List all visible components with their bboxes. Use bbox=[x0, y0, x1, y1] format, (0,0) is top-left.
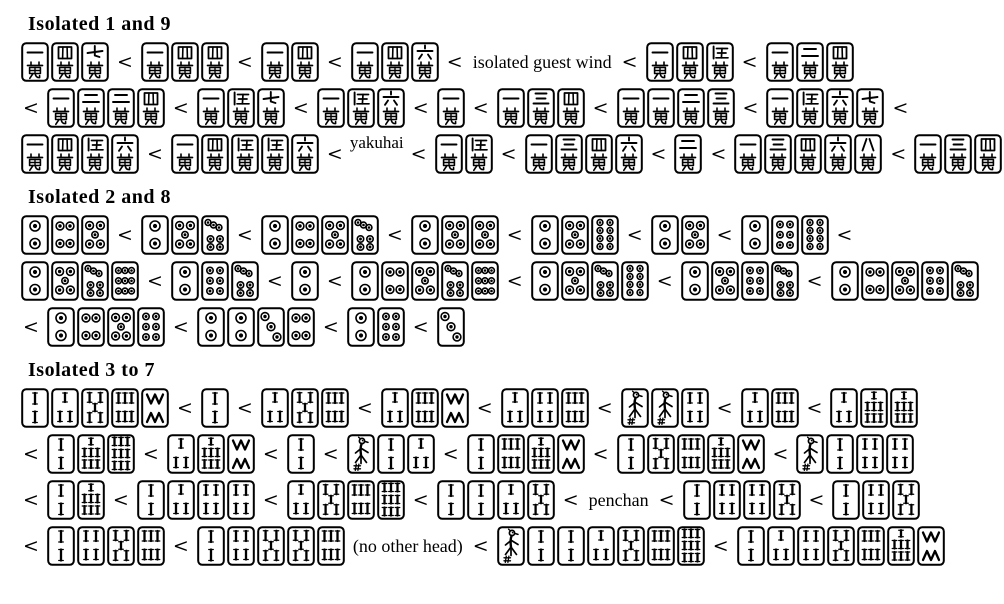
less-than-separator: < bbox=[23, 99, 39, 118]
less-than-separator: < bbox=[23, 491, 39, 510]
less-than-separator: < bbox=[113, 491, 129, 510]
mahjong-tile-4m bbox=[291, 42, 319, 82]
mahjong-tile-6p bbox=[201, 261, 229, 301]
mahjong-tile-6p bbox=[921, 261, 949, 301]
less-than-separator: < bbox=[263, 491, 279, 510]
less-than-separator: < bbox=[773, 445, 789, 464]
mahjong-tile-1s bbox=[651, 388, 679, 428]
tile-group bbox=[140, 215, 230, 255]
less-than-separator: < bbox=[267, 272, 283, 291]
tile-group bbox=[260, 215, 380, 255]
less-than-separator: < bbox=[627, 226, 643, 245]
mahjong-tile-2s bbox=[437, 480, 465, 520]
mahjong-tile-5m bbox=[81, 134, 109, 174]
less-than-separator: < bbox=[717, 399, 733, 418]
mahjong-tile-2s bbox=[617, 434, 645, 474]
mahjong-tile-4s bbox=[743, 480, 771, 520]
tile-group bbox=[616, 434, 766, 474]
mahjong-tile-1m bbox=[171, 134, 199, 174]
mahjong-tile-5p bbox=[441, 215, 469, 255]
mahjong-tile-3s bbox=[381, 388, 409, 428]
tile-group bbox=[795, 434, 915, 474]
mahjong-tile-9p bbox=[471, 261, 499, 301]
less-than-separator: < bbox=[357, 399, 373, 418]
mahjong-tile-8s bbox=[227, 434, 255, 474]
tile-group bbox=[620, 388, 710, 428]
mahjong-tile-2s bbox=[557, 526, 585, 566]
mahjong-tile-4p bbox=[861, 261, 889, 301]
tile-group bbox=[46, 88, 166, 128]
mahjong-tile-6p bbox=[137, 307, 165, 347]
mahjong-tile-4s bbox=[681, 388, 709, 428]
mahjong-tile-9p bbox=[111, 261, 139, 301]
mahjong-tile-1m bbox=[766, 88, 794, 128]
mahjong-tile-9s bbox=[107, 434, 135, 474]
mahjong-tile-5s bbox=[617, 526, 645, 566]
mahjong-tile-6m bbox=[615, 134, 643, 174]
tile-group bbox=[496, 88, 586, 128]
tile-group bbox=[680, 261, 800, 301]
less-than-separator: < bbox=[173, 537, 189, 556]
mahjong-tile-2s bbox=[737, 526, 765, 566]
tile-group bbox=[200, 388, 230, 428]
less-than-separator: < bbox=[563, 491, 579, 510]
mahjong-tile-4s bbox=[197, 480, 225, 520]
less-than-separator: < bbox=[593, 445, 609, 464]
mahjong-tile-6s bbox=[317, 526, 345, 566]
mahjong-tile-6m bbox=[824, 134, 852, 174]
tile-row: <<<<<<< bbox=[14, 212, 1004, 258]
less-than-separator: < bbox=[387, 226, 403, 245]
mahjong-tile-3s bbox=[501, 388, 529, 428]
mahjong-tile-1m bbox=[734, 134, 762, 174]
mahjong-tile-4s bbox=[531, 388, 559, 428]
tile-group bbox=[136, 480, 256, 520]
mahjong-tile-1m bbox=[766, 42, 794, 82]
tile-group bbox=[260, 42, 320, 82]
mahjong-tile-5s bbox=[257, 526, 285, 566]
tile-group bbox=[20, 134, 140, 174]
tile-group bbox=[436, 307, 466, 347]
mahjong-tile-1m bbox=[21, 134, 49, 174]
mahjong-tile-6s bbox=[857, 526, 885, 566]
mahjong-tile-3m bbox=[555, 134, 583, 174]
tile-group bbox=[831, 480, 921, 520]
mahjong-tile-7p bbox=[81, 261, 109, 301]
less-than-separator: < bbox=[117, 226, 133, 245]
mahjong-tile-3s bbox=[167, 434, 195, 474]
mahjong-tile-5s bbox=[317, 480, 345, 520]
mahjong-tile-1s bbox=[497, 526, 525, 566]
tile-group bbox=[410, 215, 500, 255]
mahjong-tile-5s bbox=[107, 526, 135, 566]
mahjong-tile-7m bbox=[856, 88, 884, 128]
mahjong-tile-6s bbox=[347, 480, 375, 520]
tile-group bbox=[434, 134, 494, 174]
less-than-separator: < bbox=[890, 145, 906, 164]
less-than-separator: < bbox=[892, 99, 908, 118]
less-than-separator: < bbox=[23, 445, 39, 464]
less-than-separator: < bbox=[507, 272, 523, 291]
mahjong-tile-6s bbox=[497, 434, 525, 474]
tile-row: <<<< bbox=[14, 304, 1004, 350]
tile-row: <<(no other head)<< bbox=[14, 523, 1004, 569]
less-than-separator: < bbox=[413, 491, 429, 510]
mahjong-tile-4s bbox=[713, 480, 741, 520]
tile-group bbox=[616, 88, 736, 128]
mahjong-tile-5m bbox=[227, 88, 255, 128]
less-than-separator: < bbox=[327, 145, 343, 164]
mahjong-tile-4m bbox=[794, 134, 822, 174]
mahjong-tile-4m bbox=[201, 134, 229, 174]
mahjong-tile-2p bbox=[227, 307, 255, 347]
mahjong-tile-6s bbox=[677, 434, 705, 474]
mahjong-tile-6p bbox=[377, 307, 405, 347]
mahjong-tile-4m bbox=[676, 42, 704, 82]
mahjong-tile-4m bbox=[51, 134, 79, 174]
tile-group bbox=[740, 215, 830, 255]
mahjong-tile-2p bbox=[291, 261, 319, 301]
mahjong-tile-7p bbox=[441, 261, 469, 301]
mahjong-tile-8p bbox=[801, 215, 829, 255]
tile-row: <<yakuhai<<<<< bbox=[14, 131, 1004, 177]
less-than-separator: < bbox=[411, 145, 427, 164]
mahjong-tile-4m bbox=[51, 42, 79, 82]
tile-group bbox=[436, 88, 466, 128]
mahjong-tile-2p bbox=[171, 261, 199, 301]
tile-group bbox=[496, 526, 706, 566]
mahjong-tile-1s bbox=[796, 434, 824, 474]
mahjong-tile-4p bbox=[291, 215, 319, 255]
mahjong-tile-6s bbox=[137, 526, 165, 566]
less-than-separator: < bbox=[173, 99, 189, 118]
less-than-separator: < bbox=[237, 53, 253, 72]
tile-group bbox=[346, 434, 436, 474]
mahjong-tile-2s bbox=[287, 434, 315, 474]
annotation-isolated-guest-wind: isolated guest wind bbox=[473, 52, 612, 73]
mahjong-tile-2s bbox=[832, 480, 860, 520]
less-than-separator: < bbox=[807, 272, 823, 291]
mahjong-tile-8s bbox=[737, 434, 765, 474]
tile-group bbox=[46, 480, 106, 520]
mahjong-tile-2s bbox=[527, 526, 555, 566]
less-than-separator: < bbox=[143, 445, 159, 464]
tile-group bbox=[140, 42, 230, 82]
mahjong-tile-1m bbox=[261, 42, 289, 82]
mahjong-tile-4m bbox=[381, 42, 409, 82]
tile-group bbox=[260, 388, 350, 428]
tile-group bbox=[170, 134, 320, 174]
less-than-separator: < bbox=[447, 53, 463, 72]
tile-row: <<<<<penchan<< bbox=[14, 477, 1004, 523]
mahjong-isolated-tile-ranking-figure: Isolated 1 and 9<<<<isolated guest wind<… bbox=[0, 0, 1004, 604]
tile-row: <<<<<<< bbox=[14, 431, 1004, 477]
mahjong-tile-1m bbox=[141, 42, 169, 82]
mahjong-tile-2p bbox=[651, 215, 679, 255]
mahjong-tile-5p bbox=[681, 215, 709, 255]
mahjong-tile-2p bbox=[531, 261, 559, 301]
less-than-separator: < bbox=[23, 537, 39, 556]
mahjong-tile-9s bbox=[677, 526, 705, 566]
tile-group bbox=[46, 434, 136, 474]
mahjong-tile-4s bbox=[862, 480, 890, 520]
mahjong-tile-3m bbox=[527, 88, 555, 128]
mahjong-tile-8p bbox=[591, 215, 619, 255]
mahjong-tile-6m bbox=[377, 88, 405, 128]
mahjong-tile-7p bbox=[201, 215, 229, 255]
mahjong-tile-5m bbox=[261, 134, 289, 174]
less-than-separator: < bbox=[473, 99, 489, 118]
mahjong-tile-7s bbox=[860, 388, 888, 428]
tile-group bbox=[20, 42, 110, 82]
mahjong-tile-2s bbox=[137, 480, 165, 520]
mahjong-tile-1m bbox=[617, 88, 645, 128]
mahjong-tile-7s bbox=[197, 434, 225, 474]
mahjong-tile-2s bbox=[467, 480, 495, 520]
mahjong-tile-2m bbox=[796, 42, 824, 82]
tile-group bbox=[765, 42, 855, 82]
mahjong-tile-5s bbox=[287, 526, 315, 566]
mahjong-tile-2s bbox=[683, 480, 711, 520]
mahjong-tile-2p bbox=[411, 215, 439, 255]
mahjong-tile-1m bbox=[197, 88, 225, 128]
mahjong-tile-2p bbox=[261, 215, 289, 255]
mahjong-tile-1m bbox=[646, 42, 674, 82]
mahjong-tile-8s bbox=[141, 388, 169, 428]
mahjong-tile-1s bbox=[347, 434, 375, 474]
mahjong-tile-2s bbox=[47, 526, 75, 566]
mahjong-tile-2s bbox=[377, 434, 405, 474]
less-than-separator: < bbox=[323, 318, 339, 337]
mahjong-tile-7s bbox=[707, 434, 735, 474]
tile-group bbox=[530, 261, 650, 301]
mahjong-tile-3s bbox=[261, 388, 289, 428]
mahjong-tile-2s bbox=[47, 480, 75, 520]
mahjong-tile-2m bbox=[677, 88, 705, 128]
mahjong-tile-2m bbox=[107, 88, 135, 128]
tile-group bbox=[290, 261, 320, 301]
mahjong-tile-6s bbox=[111, 388, 139, 428]
mahjong-tile-7p bbox=[771, 261, 799, 301]
mahjong-tile-7s bbox=[887, 526, 915, 566]
mahjong-tile-2s bbox=[47, 434, 75, 474]
mahjong-tile-4s bbox=[886, 434, 914, 474]
less-than-separator: < bbox=[327, 53, 343, 72]
mahjong-tile-5s bbox=[527, 480, 555, 520]
mahjong-tile-4p bbox=[51, 215, 79, 255]
mahjong-tile-1m bbox=[437, 88, 465, 128]
less-than-separator: < bbox=[742, 53, 758, 72]
tile-group bbox=[524, 134, 644, 174]
mahjong-tile-5p bbox=[471, 215, 499, 255]
mahjong-tile-4s bbox=[856, 434, 884, 474]
less-than-separator: < bbox=[263, 445, 279, 464]
mahjong-tile-4s bbox=[77, 526, 105, 566]
less-than-separator: < bbox=[173, 318, 189, 337]
mahjong-tile-3s bbox=[741, 388, 769, 428]
tile-group bbox=[830, 261, 980, 301]
mahjong-tile-5p bbox=[81, 215, 109, 255]
mahjong-tile-3m bbox=[764, 134, 792, 174]
less-than-separator: < bbox=[657, 272, 673, 291]
mahjong-tile-5p bbox=[561, 215, 589, 255]
less-than-separator: < bbox=[837, 226, 853, 245]
mahjong-tile-3s bbox=[51, 388, 79, 428]
mahjong-tile-7m bbox=[81, 42, 109, 82]
mahjong-tile-4s bbox=[227, 480, 255, 520]
mahjong-tile-4m bbox=[557, 88, 585, 128]
less-than-separator: < bbox=[743, 99, 759, 118]
mahjong-tile-6m bbox=[111, 134, 139, 174]
less-than-separator: < bbox=[659, 491, 675, 510]
less-than-separator: < bbox=[293, 99, 309, 118]
mahjong-tile-6s bbox=[647, 526, 675, 566]
mahjong-tile-2s bbox=[201, 388, 229, 428]
less-than-separator: < bbox=[323, 445, 339, 464]
mahjong-tile-7s bbox=[890, 388, 918, 428]
less-than-separator: < bbox=[710, 145, 726, 164]
mahjong-tile-5p bbox=[411, 261, 439, 301]
mahjong-tile-5p bbox=[711, 261, 739, 301]
annotation-no-other-head: (no other head) bbox=[353, 536, 463, 557]
mahjong-tile-6p bbox=[771, 215, 799, 255]
mahjong-tile-2p bbox=[347, 307, 375, 347]
tile-group bbox=[500, 388, 590, 428]
less-than-separator: < bbox=[597, 399, 613, 418]
mahjong-tile-8s bbox=[557, 434, 585, 474]
mahjong-tile-3s bbox=[407, 434, 435, 474]
mahjong-tile-5m bbox=[347, 88, 375, 128]
mahjong-tile-4s bbox=[227, 526, 255, 566]
less-than-separator: < bbox=[593, 99, 609, 118]
mahjong-tile-7s bbox=[77, 480, 105, 520]
mahjong-tile-2p bbox=[47, 307, 75, 347]
mahjong-tile-1m bbox=[47, 88, 75, 128]
tile-group bbox=[913, 134, 1004, 174]
less-than-separator: < bbox=[717, 226, 733, 245]
mahjong-tile-5s bbox=[647, 434, 675, 474]
mahjong-tile-5s bbox=[827, 526, 855, 566]
less-than-separator: < bbox=[501, 145, 517, 164]
section-title: Isolated 3 to 7 bbox=[28, 359, 1004, 381]
mahjong-tile-4m bbox=[201, 42, 229, 82]
less-than-separator: < bbox=[23, 318, 39, 337]
less-than-separator: < bbox=[327, 272, 343, 291]
mahjong-tile-6s bbox=[411, 388, 439, 428]
tile-group bbox=[765, 88, 885, 128]
less-than-separator: < bbox=[622, 53, 638, 72]
tile-group bbox=[346, 307, 406, 347]
mahjong-tile-5m bbox=[465, 134, 493, 174]
mahjong-tile-3s bbox=[167, 480, 195, 520]
tile-group bbox=[650, 215, 710, 255]
tile-group bbox=[316, 88, 406, 128]
mahjong-tile-2p bbox=[21, 261, 49, 301]
section-title: Isolated 2 and 8 bbox=[28, 186, 1004, 208]
mahjong-tile-2s bbox=[21, 388, 49, 428]
annotation-penchan: penchan bbox=[589, 490, 649, 511]
mahjong-tile-4p bbox=[381, 261, 409, 301]
less-than-separator: < bbox=[117, 53, 133, 72]
mahjong-tile-7m bbox=[257, 88, 285, 128]
less-than-separator: < bbox=[807, 399, 823, 418]
less-than-separator: < bbox=[237, 399, 253, 418]
mahjong-tile-5s bbox=[291, 388, 319, 428]
less-than-separator: < bbox=[713, 537, 729, 556]
mahjong-tile-5s bbox=[773, 480, 801, 520]
less-than-separator: < bbox=[237, 226, 253, 245]
mahjong-tile-3p bbox=[437, 307, 465, 347]
mahjong-tile-3s bbox=[497, 480, 525, 520]
mahjong-tile-5m bbox=[706, 42, 734, 82]
less-than-separator: < bbox=[477, 399, 493, 418]
mahjong-tile-6m bbox=[826, 88, 854, 128]
mahjong-tile-2p bbox=[351, 261, 379, 301]
tile-group bbox=[196, 88, 286, 128]
mahjong-tile-3m bbox=[707, 88, 735, 128]
mahjong-tile-8s bbox=[917, 526, 945, 566]
tile-row: <<<<isolated guest wind<< bbox=[14, 39, 1004, 85]
mahjong-tile-5p bbox=[561, 261, 589, 301]
mahjong-tile-1m bbox=[525, 134, 553, 174]
mahjong-tile-7s bbox=[527, 434, 555, 474]
mahjong-tile-1m bbox=[21, 42, 49, 82]
mahjong-tile-6s bbox=[771, 388, 799, 428]
mahjong-tile-1m bbox=[317, 88, 345, 128]
tile-group bbox=[166, 434, 256, 474]
less-than-separator: < bbox=[507, 226, 523, 245]
mahjong-tile-4m bbox=[137, 88, 165, 128]
tile-group bbox=[350, 261, 500, 301]
mahjong-tile-6m bbox=[411, 42, 439, 82]
mahjong-tile-6m bbox=[291, 134, 319, 174]
mahjong-tile-5p bbox=[321, 215, 349, 255]
less-than-separator: < bbox=[413, 99, 429, 118]
mahjong-tile-8s bbox=[441, 388, 469, 428]
tile-group bbox=[466, 434, 586, 474]
mahjong-tile-4m bbox=[585, 134, 613, 174]
mahjong-tile-6p bbox=[741, 261, 769, 301]
mahjong-tile-5p bbox=[891, 261, 919, 301]
mahjong-tile-4m bbox=[974, 134, 1002, 174]
tile-group bbox=[380, 388, 470, 428]
less-than-separator: < bbox=[473, 537, 489, 556]
tile-group bbox=[170, 261, 260, 301]
tile-group bbox=[46, 307, 166, 347]
mahjong-tile-1m bbox=[647, 88, 675, 128]
tile-group bbox=[350, 42, 440, 82]
mahjong-tile-6s bbox=[561, 388, 589, 428]
tile-group bbox=[645, 42, 735, 82]
tile-row: <<<<<<<< bbox=[14, 85, 1004, 131]
tile-group bbox=[673, 134, 703, 174]
mahjong-tile-1m bbox=[435, 134, 463, 174]
mahjong-tile-2p bbox=[741, 215, 769, 255]
section-title: Isolated 1 and 9 bbox=[28, 13, 1004, 35]
tile-group bbox=[682, 480, 802, 520]
mahjong-tile-7s bbox=[77, 434, 105, 474]
tile-group bbox=[736, 526, 946, 566]
tile-group bbox=[20, 388, 170, 428]
mahjong-tile-5p bbox=[107, 307, 135, 347]
mahjong-tile-3s bbox=[767, 526, 795, 566]
tile-group bbox=[733, 134, 883, 174]
mahjong-tile-2m bbox=[674, 134, 702, 174]
less-than-separator: < bbox=[651, 145, 667, 164]
mahjong-tile-4p bbox=[287, 307, 315, 347]
mahjong-tile-8p bbox=[621, 261, 649, 301]
tile-group bbox=[436, 480, 556, 520]
